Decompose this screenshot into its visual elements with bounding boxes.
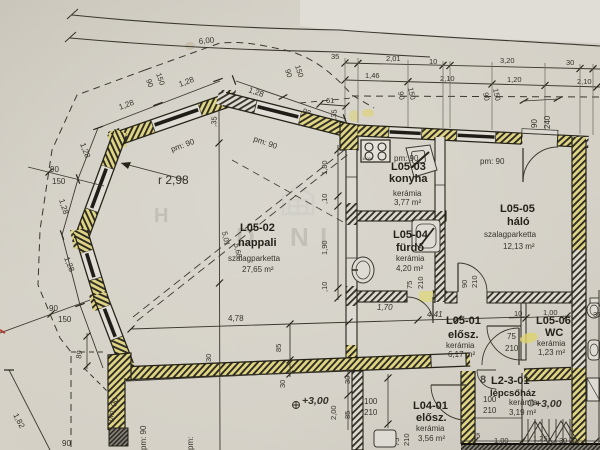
svg-text:L05-06: L05-06 (536, 315, 571, 327)
svg-text:61: 61 (326, 96, 334, 105)
svg-text:L04-01: L04-01 (413, 400, 448, 412)
svg-text:10002: 10002 (362, 156, 374, 161)
svg-text:pm: 90: pm: 90 (480, 157, 505, 166)
svg-text:L05-04: L05-04 (393, 229, 429, 241)
svg-text:210: 210 (416, 276, 425, 289)
svg-text:kerámia: kerámia (446, 341, 475, 350)
svg-text:210: 210 (402, 433, 411, 446)
svg-text:1,20: 1,20 (507, 75, 522, 84)
svg-text:100: 100 (364, 397, 378, 406)
svg-text:L2-3-01: L2-3-01 (491, 375, 530, 387)
svg-text:85: 85 (274, 344, 283, 352)
svg-text:30: 30 (204, 354, 213, 362)
svg-text:210: 210 (505, 344, 519, 353)
svg-text:90: 90 (460, 280, 469, 288)
svg-text:N: N (290, 222, 309, 252)
svg-text:3,19 m²: 3,19 m² (509, 408, 536, 417)
svg-text:L05-03: L05-03 (391, 161, 426, 173)
svg-text:1,25: 1,25 (533, 434, 548, 443)
svg-text:szalagparketta: szalagparketta (484, 230, 537, 239)
svg-text:pm:: pm: (186, 437, 195, 450)
svg-text:89: 89 (74, 350, 84, 360)
svg-text:nappali: nappali (238, 237, 277, 249)
svg-text:1,70: 1,70 (377, 303, 393, 312)
svg-text:+3,00: +3,00 (535, 398, 562, 410)
svg-text:2,00: 2,00 (329, 405, 338, 420)
svg-text:27,65 m²: 27,65 m² (242, 265, 274, 274)
svg-text:,10: ,10 (320, 194, 329, 204)
svg-text:210: 210 (470, 275, 479, 288)
svg-text:szalagparketta: szalagparketta (228, 254, 281, 263)
svg-text:2,01: 2,01 (386, 54, 401, 63)
svg-text:75: 75 (507, 332, 516, 341)
svg-text:4,78: 4,78 (228, 314, 244, 323)
svg-text:6,00: 6,00 (198, 35, 215, 46)
svg-text:2,10: 2,10 (577, 77, 592, 86)
svg-text:4,41: 4,41 (427, 310, 443, 319)
svg-text:75: 75 (472, 431, 480, 440)
svg-text:elősz.: elősz. (448, 329, 479, 341)
svg-text:L05-05: L05-05 (500, 203, 535, 215)
svg-text:fürdő: fürdő (396, 242, 424, 254)
svg-text:elősz.: elősz. (416, 412, 447, 424)
svg-text:12,13 m²: 12,13 m² (503, 242, 535, 251)
svg-text:10: 10 (514, 309, 522, 318)
svg-text:2,10: 2,10 (440, 74, 455, 83)
svg-text:85: 85 (343, 411, 352, 419)
svg-text:10: 10 (429, 57, 437, 66)
svg-text:35: 35 (331, 52, 339, 61)
svg-text:3,56 m²: 3,56 m² (418, 434, 445, 443)
svg-text:kerámia: kerámia (396, 254, 425, 263)
svg-text:,35: ,35 (209, 116, 219, 127)
svg-text:3,77 m²: 3,77 m² (394, 198, 421, 207)
svg-text:210: 210 (364, 408, 378, 417)
svg-text:1,46: 1,46 (365, 71, 380, 80)
svg-text:30: 30 (278, 380, 287, 388)
svg-text:30: 30 (566, 58, 574, 67)
svg-text:1,80: 1,80 (320, 160, 329, 175)
svg-text:30: 30 (343, 376, 352, 384)
svg-text:75: 75 (405, 281, 414, 289)
svg-text:,10: ,10 (320, 282, 329, 292)
svg-text:kerámia: kerámia (537, 339, 566, 348)
svg-text:3,20: 3,20 (500, 56, 515, 65)
svg-text:kerámia: kerámia (393, 189, 422, 198)
svg-text:1,90: 1,90 (320, 240, 329, 255)
svg-text:30: 30 (559, 436, 567, 445)
svg-text:konyha: konyha (389, 173, 428, 185)
svg-text:L05-01: L05-01 (446, 315, 481, 327)
svg-text:H: H (154, 205, 168, 227)
svg-text:240: 240 (543, 115, 552, 129)
svg-text:30: 30 (593, 310, 600, 319)
svg-text:150: 150 (52, 177, 66, 186)
svg-text:+3,00: +3,00 (302, 395, 329, 407)
svg-text:kerámia: kerámia (416, 424, 445, 433)
svg-text:90: 90 (62, 439, 71, 448)
svg-text:90: 90 (50, 165, 59, 174)
svg-text:L05-02: L05-02 (240, 222, 275, 234)
svg-text:háló: háló (507, 216, 530, 228)
svg-text:8: 8 (480, 374, 486, 386)
svg-text:pm: 90: pm: 90 (139, 425, 148, 450)
svg-text:1,00: 1,00 (494, 436, 509, 445)
svg-text:4,20 m²: 4,20 m² (396, 264, 423, 273)
svg-text:210: 210 (483, 406, 497, 415)
svg-text:r 2,98: r 2,98 (158, 173, 189, 187)
svg-text:1,23 m²: 1,23 m² (538, 348, 565, 357)
svg-text:6,17 m²: 6,17 m² (448, 350, 475, 359)
svg-text:90: 90 (530, 119, 539, 128)
svg-text:WC: WC (545, 327, 563, 339)
svg-text:90: 90 (49, 304, 58, 313)
svg-text:150: 150 (58, 315, 72, 324)
